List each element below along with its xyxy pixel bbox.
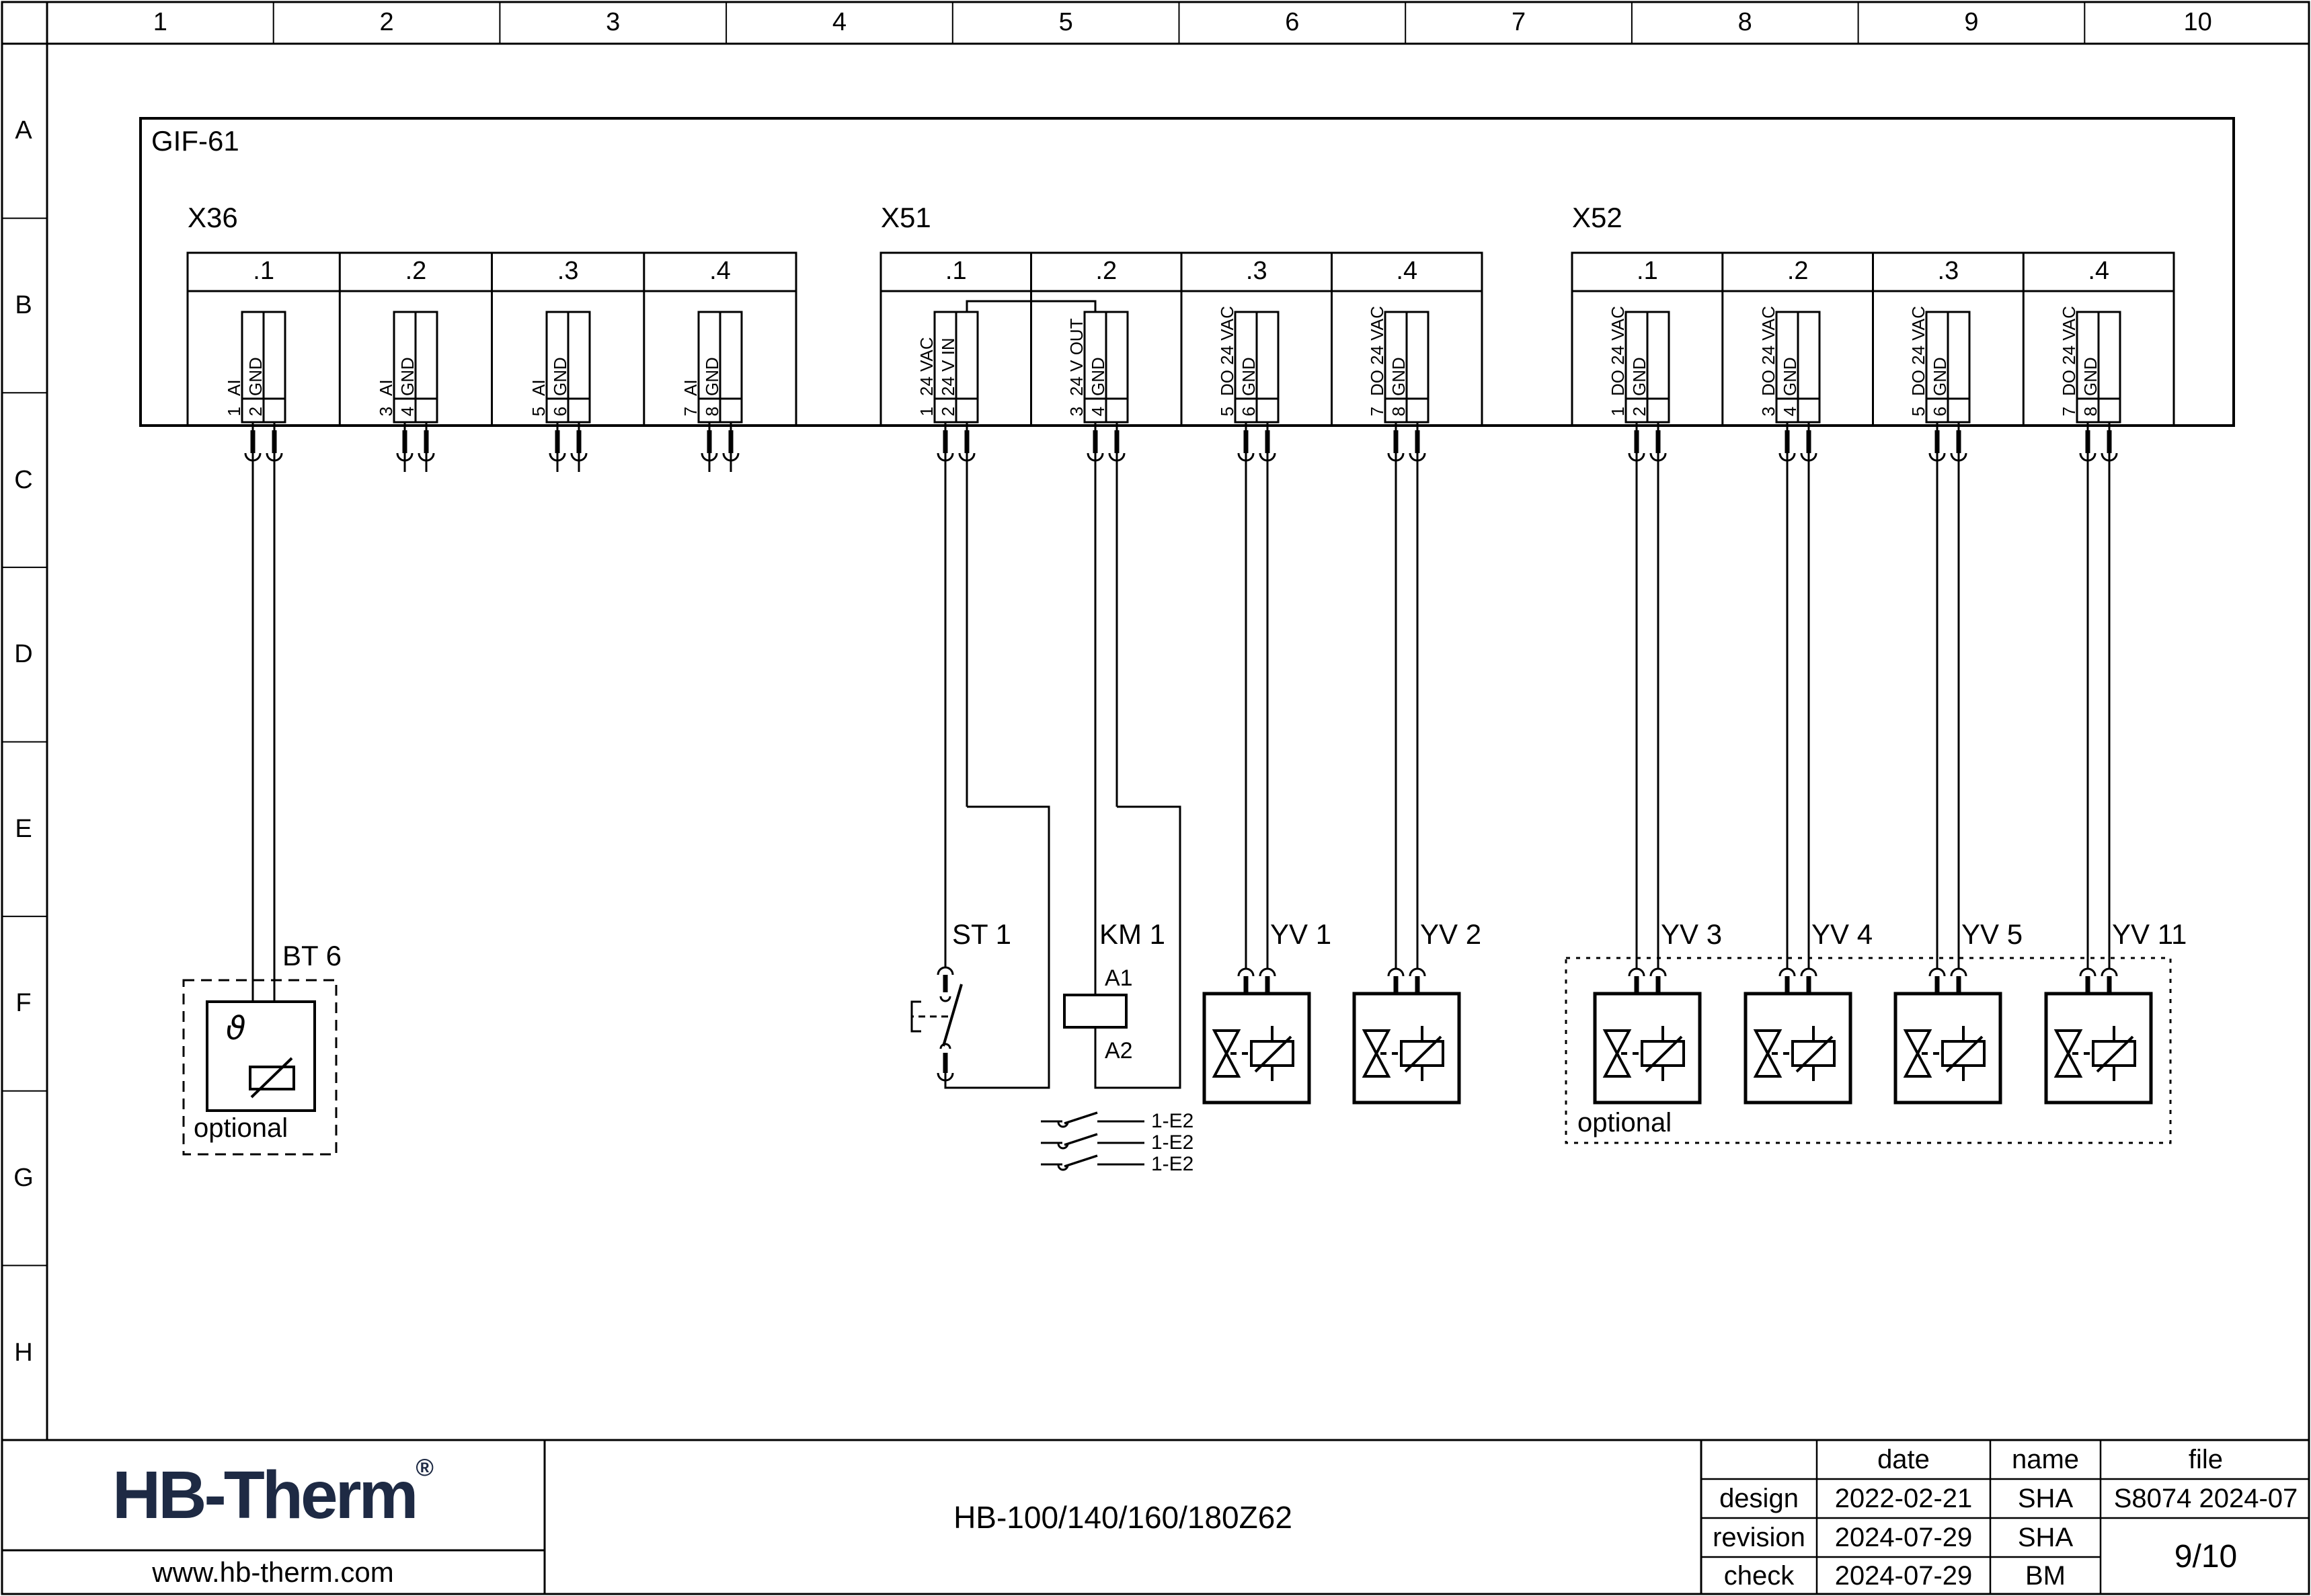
terminal-pin-number: 2 [246,401,265,422]
terminal-signal-label: AI [681,311,700,396]
terminal-signal-label: DO 24 VAC [2060,311,2078,396]
ruler-row-label: D [1,567,46,742]
terminal-pin-number: 8 [2081,401,2100,422]
section-label: .4 [644,254,796,288]
section-label: .3 [1873,254,2024,288]
terminal-pin-number: 8 [1389,401,1408,422]
terminal-signal-label: 24 V OUT [1067,311,1086,396]
terminal-signal-label: GND [246,311,265,396]
terminal-signal-label: GND [551,311,570,396]
terminal-signal-label: AI [225,311,243,396]
contact-label: 1-E2 [1151,1153,1193,1176]
terminal-pin-number: 1 [917,401,936,422]
terminal-pin-number: 4 [398,401,417,422]
valve-label: YV 5 [1961,918,2023,951]
terminal-pin-number: 2 [939,401,957,422]
ruler-column-label: 1 [47,1,274,43]
contact-label: 1-E2 [1151,1131,1193,1154]
terminal-signal-label: AI [377,311,395,396]
ruler-column-label: 3 [500,1,726,43]
section-label: .1 [1572,254,1723,288]
component-label-st1: ST 1 [952,918,1011,951]
terminal-pin-number: 3 [1759,401,1778,422]
terminal-pin-number: 7 [1368,401,1386,422]
terminal-signal-label: DO 24 VAC [1608,311,1627,396]
connector-label: X51 [881,202,931,234]
terminal-signal-label: GND [1780,311,1799,396]
connector-label: X52 [1572,202,1622,234]
ruler-row-label: A [1,44,46,218]
section-label: .4 [1332,254,1483,288]
coil-terminal-a2: A2 [1105,1038,1133,1064]
logo: HB-Therm® [1,1443,545,1548]
section-label: .2 [340,254,492,288]
valve-label: YV 1 [1270,918,1331,951]
terminal-signal-label: GND [1089,311,1107,396]
sensor-box [207,1002,315,1111]
terminal-signal-label: DO 24 VAC [1218,311,1237,396]
wiring-layer [0,0,2311,1596]
section-label: .3 [492,254,644,288]
section-label: .2 [1031,254,1182,288]
terminal-pin-number: 7 [2060,401,2078,422]
section-label: .4 [2023,254,2174,288]
valve-label: YV 2 [1420,918,1481,951]
terminal-signal-label: DO 24 VAC [1368,311,1386,396]
terminal-pin-number: 2 [1630,401,1649,422]
terminal-pin-number: 4 [1780,401,1799,422]
ruler-column-label: 6 [1179,1,1406,43]
terminal-pin-number: 1 [225,401,243,422]
terminal-pin-number: 4 [1089,401,1107,422]
coil-symbol [1064,995,1126,1027]
titleblock-row-label: design [1701,1479,1817,1518]
terminal-pin-number: 8 [703,401,721,422]
titleblock-header-file: file [2101,1440,2311,1479]
ruler-column-label: 4 [726,1,953,43]
terminal-pin-number: 3 [1067,401,1086,422]
titleblock-cell-date: 2022-02-21 [1817,1479,1990,1518]
terminal-pin-number: 3 [377,401,395,422]
ruler-row-label: F [1,916,46,1091]
component-label-km1: KM 1 [1099,918,1165,951]
terminal-pin-number: 6 [1930,401,1949,422]
titleblock-header-date: date [1817,1440,1990,1479]
valve-label: YV 4 [1811,918,1873,951]
section-label: .2 [1723,254,1873,288]
optional-note: optional [194,1113,288,1144]
terminal-pin-number: 1 [1608,401,1627,422]
valve-label: YV 3 [1661,918,1722,951]
terminal-signal-label: GND [1389,311,1408,396]
ruler-column-label: 2 [274,1,500,43]
ruler-column-label: 8 [1632,1,1858,43]
terminal-pin-number: 5 [1218,401,1237,422]
ruler-row-label: H [1,1265,46,1440]
terminal-signal-label: GND [1239,311,1258,396]
valve-label: YV 11 [2112,918,2187,951]
titleblock-row-label: check [1701,1557,1817,1595]
section-label: .1 [188,254,340,288]
ruler-row-label: C [1,393,46,567]
terminal-pin-number: 6 [1239,401,1258,422]
section-label: .1 [881,254,1031,288]
terminal-signal-label: 24 V IN [939,311,957,396]
terminal-signal-label: GND [1630,311,1649,396]
titleblock-cell-date: 2024-07-29 [1817,1518,1990,1557]
terminal-signal-label: 24 VAC [917,311,936,396]
ruler-column-label: 5 [953,1,1179,43]
website-link[interactable]: www.hb-therm.com [1,1550,545,1595]
ruler-column-label: 9 [1858,1,2085,43]
ruler-row-label: E [1,742,46,917]
component-label-bt6: BT 6 [282,940,342,972]
coil-terminal-a1: A1 [1105,965,1133,992]
terminal-signal-label: GND [2081,311,2100,396]
terminal-pin-number: 6 [551,401,570,422]
terminal-signal-label: GND [1930,311,1949,396]
terminal-pin-number: 5 [529,401,548,422]
optional-note: optional [1577,1108,1672,1138]
terminal-signal-label: AI [529,311,548,396]
ruler-column-label: 7 [1405,1,1632,43]
module-label: GIF-61 [151,125,239,157]
theta-symbol: ϑ [226,1010,246,1047]
page-number: 9/10 [2101,1518,2311,1595]
logo-text: HB-Therm [112,1457,416,1534]
ruler-row-label: B [1,218,46,393]
titleblock-cell-name: BM [1990,1557,2101,1595]
contact-label: 1-E2 [1151,1110,1193,1133]
section-label: .3 [1181,254,1332,288]
ruler-row-label: G [1,1091,46,1266]
titleblock-cell-name: SHA [1990,1479,2101,1518]
connector-label: X36 [188,202,238,234]
drawing-title: HB-100/140/160/180Z62 [545,1440,1701,1595]
titleblock-cell-name: SHA [1990,1518,2101,1557]
schematic-page: HB-Therm® www.hb-therm.com HB-100/140/16… [0,0,2311,1596]
terminal-signal-label: GND [703,311,721,396]
registered-trademark-icon: ® [416,1453,434,1482]
titleblock-row-label: revision [1701,1518,1817,1557]
titleblock-cell-date: 2024-07-29 [1817,1557,1990,1595]
terminal-pin-number: 7 [681,401,700,422]
terminal-signal-label: DO 24 VAC [1759,311,1778,396]
terminal-pin-number: 5 [1909,401,1928,422]
terminal-signal-label: DO 24 VAC [1909,311,1928,396]
terminal-signal-label: GND [398,311,417,396]
ruler-column-label: 10 [2084,1,2311,43]
titleblock-cell-file: S8074 2024-07 [2101,1479,2311,1518]
titleblock-header-name: name [1990,1440,2101,1479]
